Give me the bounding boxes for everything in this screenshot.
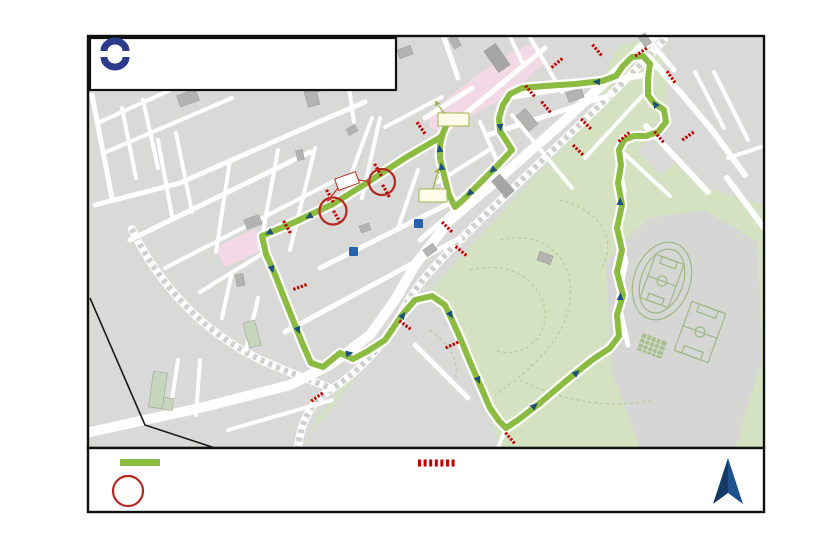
museum-icon xyxy=(414,219,423,228)
legend-route-swatch xyxy=(120,459,160,466)
map-canvas xyxy=(0,0,820,552)
stadium-zone xyxy=(606,210,762,448)
building xyxy=(162,397,174,410)
building xyxy=(235,273,245,286)
museum-icon xyxy=(349,247,358,256)
legend xyxy=(88,448,764,512)
title-box xyxy=(90,38,396,90)
map-page xyxy=(0,0,820,552)
